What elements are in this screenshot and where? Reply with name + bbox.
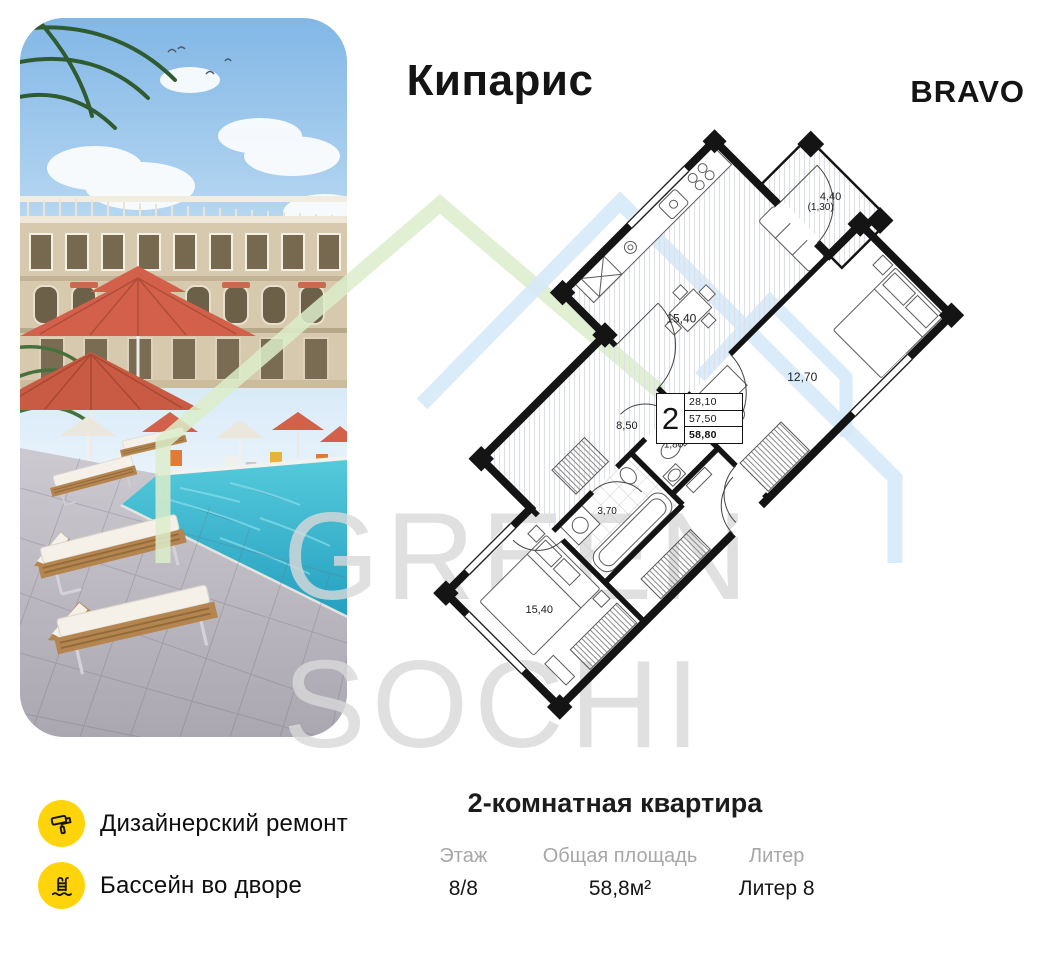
room-label-kitchen-living: 15,40 [666, 311, 696, 325]
plan-summary-box: 2 28,10 57,50 58,80 [656, 393, 743, 444]
feature-disc [38, 862, 85, 909]
pool-ladder-icon [49, 873, 75, 899]
feature-label: Дизайнерский ремонт [100, 810, 348, 838]
feature-designer-renovation: Дизайнерский ремонт [38, 800, 348, 847]
stat-value: 58,8м² [542, 877, 699, 901]
room-label-balcony-reduced: (1,30) [808, 202, 834, 213]
feature-label: Бассейн во дворе [100, 872, 302, 900]
feature-pool-in-yard: Бассейн во дворе [38, 862, 302, 909]
total-area-value: 58,80 [685, 427, 742, 443]
apartment-title: 2-комнатная квартира [380, 788, 850, 819]
rooms-count: 2 [657, 394, 685, 443]
stat-label: Литер [698, 845, 855, 868]
stat-value: 8/8 [385, 877, 542, 901]
feature-disc [38, 800, 85, 847]
room-label-bedroom-2: 15,40 [525, 604, 553, 616]
living-area-value: 28,10 [685, 394, 742, 411]
stat-label: Этаж [385, 845, 542, 868]
stat-label: Общая площадь [542, 845, 699, 868]
paint-roller-icon [49, 811, 75, 837]
stat-liter: Литер Литер 8 [698, 845, 855, 901]
courtyard-pool-illustration [20, 18, 347, 737]
stat-value: Литер 8 [698, 877, 855, 901]
mid-area-value: 57,50 [685, 411, 742, 428]
apartment-stats: Этаж 8/8 Общая площадь 58,8м² Литер Лите… [385, 845, 855, 901]
stat-total-area: Общая площадь 58,8м² [542, 845, 699, 901]
courtyard-pool-photo [20, 18, 347, 737]
room-label-bedroom: 12,70 [787, 370, 817, 384]
stat-floor: Этаж 8/8 [385, 845, 542, 901]
room-label-hallway: 8,50 [616, 420, 637, 432]
room-label-bathroom: 3,70 [597, 506, 617, 517]
